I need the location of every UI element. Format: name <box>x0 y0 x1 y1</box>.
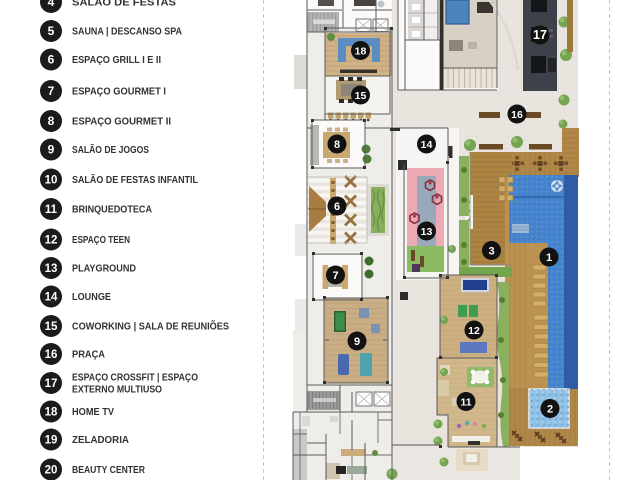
svg-text:ESPAÇO CROSSFIT | ESPAÇO: ESPAÇO CROSSFIT | ESPAÇO <box>72 373 198 384</box>
svg-text:15: 15 <box>45 321 58 333</box>
svg-text:COWORKING | SALA DE REUNIÕES: COWORKING | SALA DE REUNIÕES <box>72 320 229 333</box>
svg-text:16: 16 <box>45 349 58 361</box>
svg-text:PLAYGROUND: PLAYGROUND <box>72 264 136 275</box>
svg-text:5: 5 <box>48 24 55 38</box>
svg-text:1: 1 <box>546 252 552 264</box>
svg-text:11: 11 <box>460 396 471 408</box>
svg-text:20: 20 <box>45 465 58 477</box>
svg-text:12: 12 <box>45 235 58 247</box>
svg-text:6: 6 <box>48 53 55 67</box>
svg-text:18: 18 <box>355 45 367 57</box>
svg-text:19: 19 <box>45 435 58 447</box>
svg-text:HOME TV: HOME TV <box>72 407 114 418</box>
svg-text:2: 2 <box>547 403 553 415</box>
svg-text:11: 11 <box>45 204 58 216</box>
svg-text:PRAÇA: PRAÇA <box>72 350 105 361</box>
svg-text:SALÃO DE FESTAS: SALÃO DE FESTAS <box>72 0 176 9</box>
svg-text:7: 7 <box>332 270 338 282</box>
svg-text:7: 7 <box>48 84 55 98</box>
svg-text:13: 13 <box>45 263 58 275</box>
svg-text:18: 18 <box>45 407 58 419</box>
svg-text:ESPAÇO TEEN: ESPAÇO TEEN <box>72 235 130 246</box>
svg-text:ESPAÇO GRILL I E II: ESPAÇO GRILL I E II <box>72 55 161 66</box>
svg-text:14: 14 <box>45 292 58 304</box>
svg-text:16: 16 <box>511 109 523 121</box>
svg-text:SALÃO DE FESTAS INFANTIL: SALÃO DE FESTAS INFANTIL <box>72 173 198 186</box>
svg-text:10: 10 <box>45 175 58 187</box>
svg-text:17: 17 <box>533 28 547 42</box>
svg-text:14: 14 <box>421 139 433 151</box>
svg-text:3: 3 <box>488 245 494 257</box>
svg-text:ZELADORIA: ZELADORIA <box>72 435 129 446</box>
svg-text:EXTERNO MULTIUSO: EXTERNO MULTIUSO <box>72 385 162 396</box>
svg-text:9: 9 <box>48 143 55 157</box>
svg-text:17: 17 <box>45 378 58 390</box>
svg-text:BRINQUEDOTECA: BRINQUEDOTECA <box>72 205 152 216</box>
svg-text:SALÃO DE JOGOS: SALÃO DE JOGOS <box>72 143 149 156</box>
svg-text:BEAUTY CENTER: BEAUTY CENTER <box>72 465 146 476</box>
svg-text:4: 4 <box>48 0 55 9</box>
svg-text:ESPAÇO GOURMET I: ESPAÇO GOURMET I <box>72 87 166 98</box>
svg-text:12: 12 <box>468 325 480 337</box>
svg-text:6: 6 <box>334 201 340 213</box>
svg-text:13: 13 <box>421 226 433 238</box>
svg-text:8: 8 <box>48 114 55 128</box>
svg-text:8: 8 <box>334 139 340 151</box>
svg-text:SAUNA | DESCANSO SPA: SAUNA | DESCANSO SPA <box>72 27 182 38</box>
svg-text:LOUNGE: LOUNGE <box>72 292 111 303</box>
svg-text:15: 15 <box>355 90 367 102</box>
svg-text:9: 9 <box>354 336 360 348</box>
svg-text:ESPAÇO GOURMET II: ESPAÇO GOURMET II <box>72 117 171 128</box>
